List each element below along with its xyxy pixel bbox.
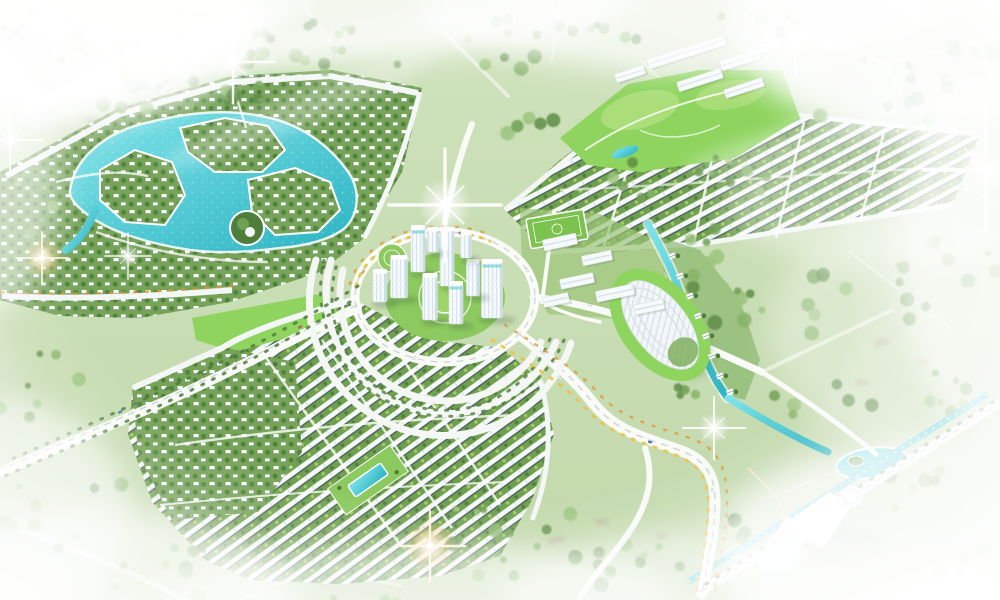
aerial-masterplan-render [0,0,1000,600]
fog-layer [0,0,1000,600]
edge-vignette [0,0,1000,600]
masterplan-canvas [0,0,1000,600]
